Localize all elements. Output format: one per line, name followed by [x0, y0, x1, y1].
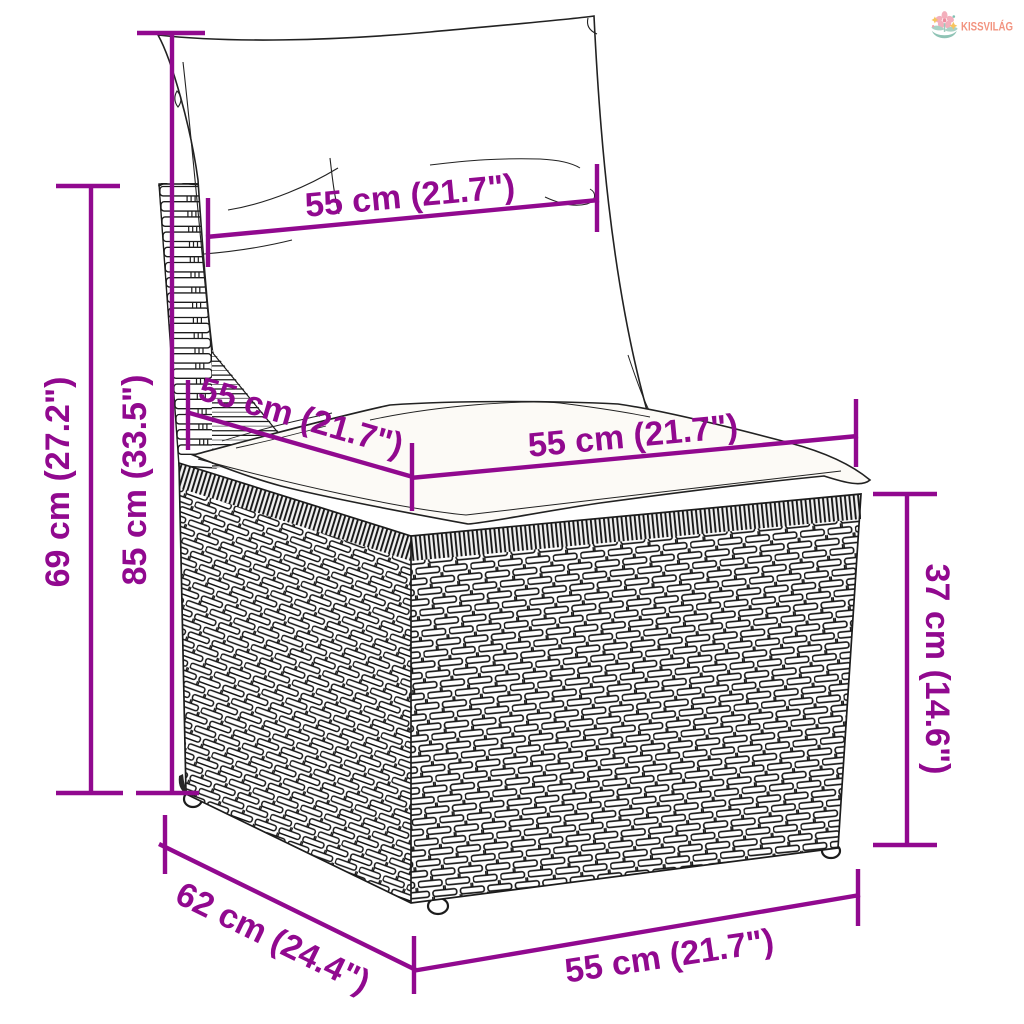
svg-text:69 cm (27.2"): 69 cm (27.2")	[39, 377, 77, 588]
svg-text:85 cm (33.5"): 85 cm (33.5")	[116, 375, 154, 586]
svg-text:37 cm (14.6"): 37 cm (14.6")	[918, 564, 956, 775]
svg-text:KISSVILÁG: KISSVILÁG	[961, 21, 1013, 34]
